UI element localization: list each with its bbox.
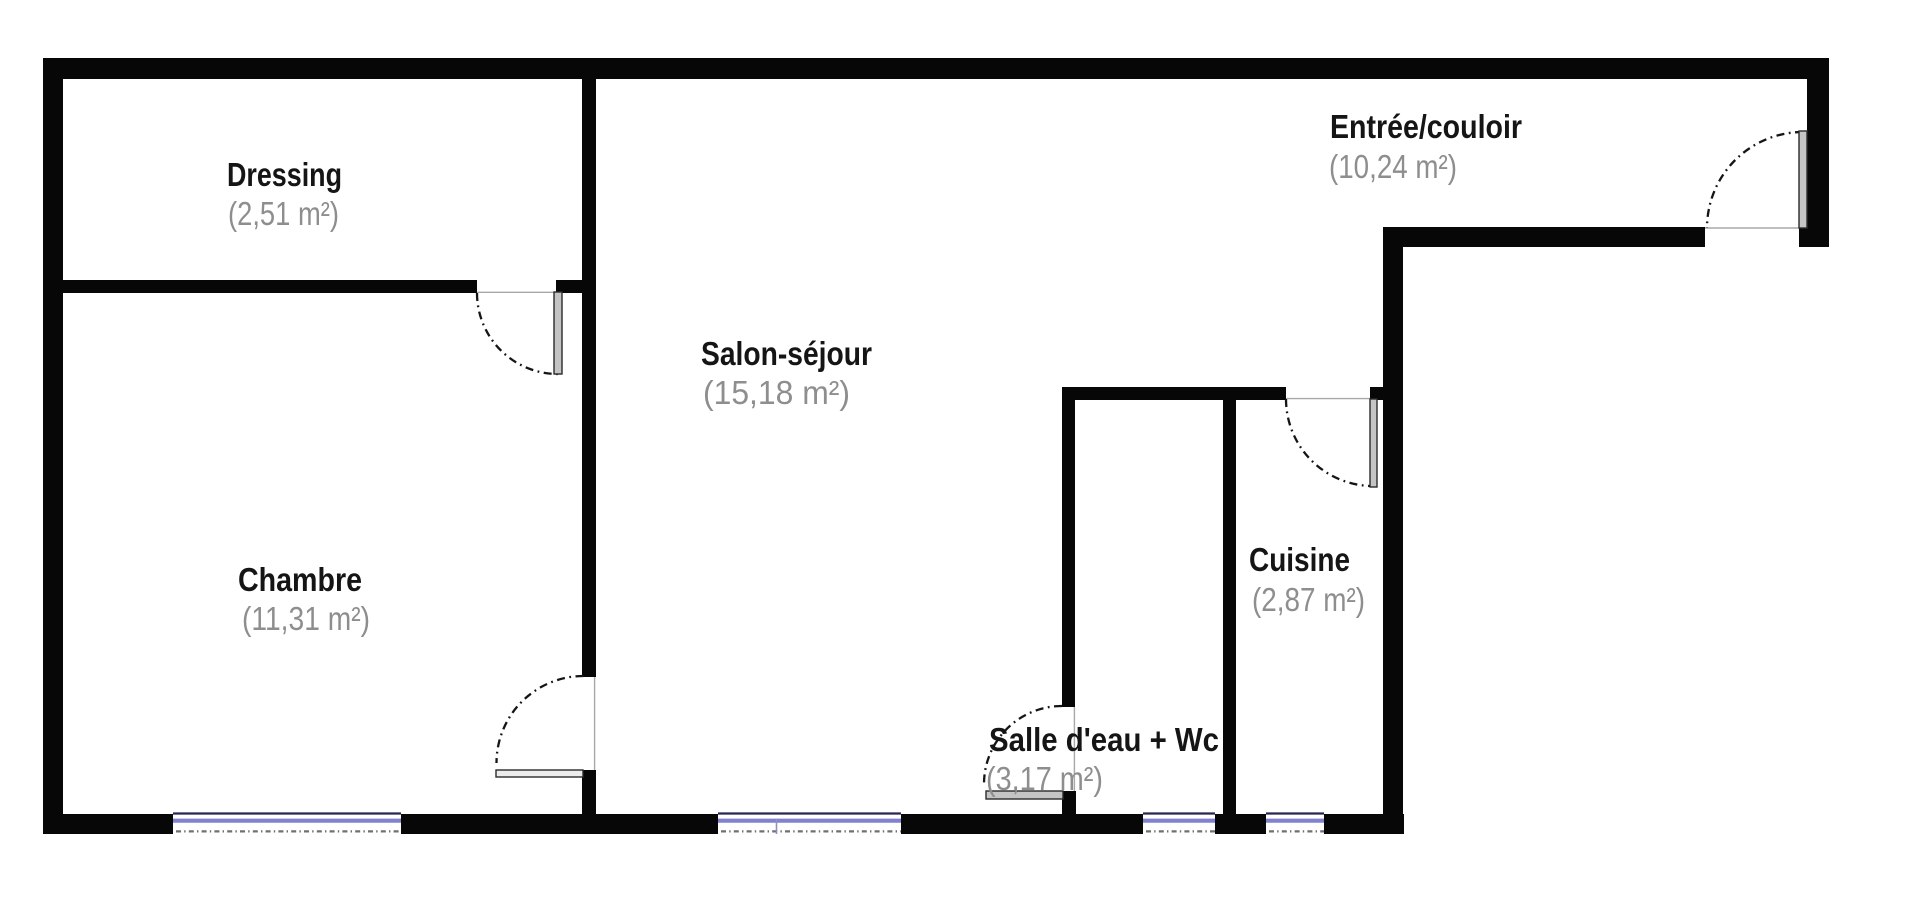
svg-text:Chambre: Chambre <box>238 561 362 598</box>
svg-text:Cuisine: Cuisine <box>1249 541 1350 578</box>
svg-text:(15,18 m²): (15,18 m²) <box>703 374 850 411</box>
svg-text:(3,17 m²): (3,17 m²) <box>986 760 1103 797</box>
svg-text:(10,24 m²): (10,24 m²) <box>1329 148 1457 185</box>
svg-text:(2,87 m²): (2,87 m²) <box>1252 581 1365 618</box>
svg-text:Salon-séjour: Salon-séjour <box>701 335 872 372</box>
svg-text:(2,51 m²): (2,51 m²) <box>228 195 339 232</box>
svg-text:Salle d'eau + Wc: Salle d'eau + Wc <box>989 721 1219 758</box>
svg-text:Entrée/couloir: Entrée/couloir <box>1330 108 1522 145</box>
svg-text:(11,31 m²): (11,31 m²) <box>242 600 370 637</box>
svg-text:Dressing: Dressing <box>227 156 342 193</box>
